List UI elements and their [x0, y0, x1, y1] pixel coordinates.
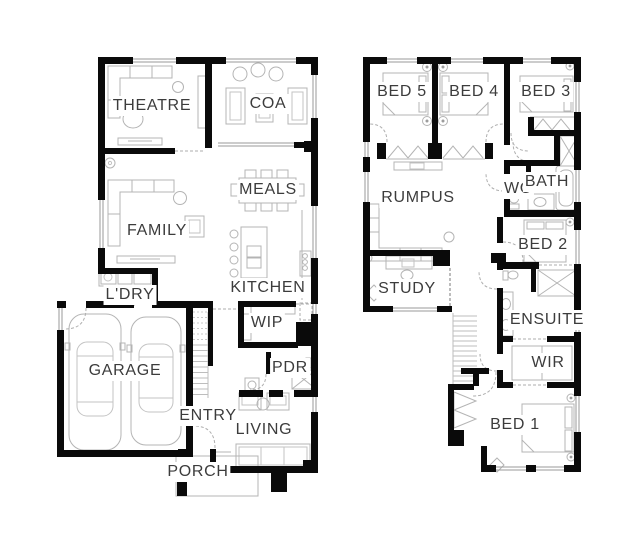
room-label-ldry: L'DRY	[104, 285, 157, 305]
room-label-wir: WIR	[529, 353, 566, 373]
room-label-rumpus: RUMPUS	[379, 188, 457, 208]
room-label-bath: BATH	[523, 172, 571, 192]
first-walls	[363, 57, 581, 472]
family-furniture-icon	[105, 158, 204, 263]
room-label-bed2: BED 2	[516, 235, 570, 255]
room-label-meals: MEALS	[237, 180, 299, 200]
first-floor-plan	[363, 57, 581, 472]
room-label-wip: WIP	[249, 313, 285, 333]
room-label-ensuite: ENSUITE	[508, 310, 586, 330]
ground-staircase-icon	[193, 312, 208, 398]
room-label-family: FAMILY	[125, 221, 189, 241]
room-label-kitchen: KITCHEN	[228, 278, 307, 298]
room-label-bed1: BED 1	[488, 415, 542, 435]
room-label-study: STUDY	[376, 279, 438, 299]
garage-cars-icon	[65, 314, 185, 450]
room-label-living: LIVING	[234, 420, 295, 440]
room-label-coa: COA	[248, 94, 289, 114]
room-label-pdr: PDR	[270, 358, 310, 378]
room-label-bed5: BED 5	[375, 82, 429, 102]
room-label-bed3: BED 3	[519, 82, 573, 102]
room-label-porch: PORCH	[165, 462, 230, 482]
room-label-bed4: BED 4	[447, 82, 501, 102]
room-label-entry: ENTRY	[177, 406, 238, 426]
floor-plan-canvas: THEATRE COA MEALS FAMILY KITCHEN L'DRY W…	[0, 0, 639, 551]
room-label-garage: GARAGE	[87, 361, 164, 381]
room-label-theatre: THEATRE	[111, 96, 193, 116]
first-staircase-icon	[450, 268, 477, 384]
rumpus-furniture-icon	[366, 162, 454, 261]
